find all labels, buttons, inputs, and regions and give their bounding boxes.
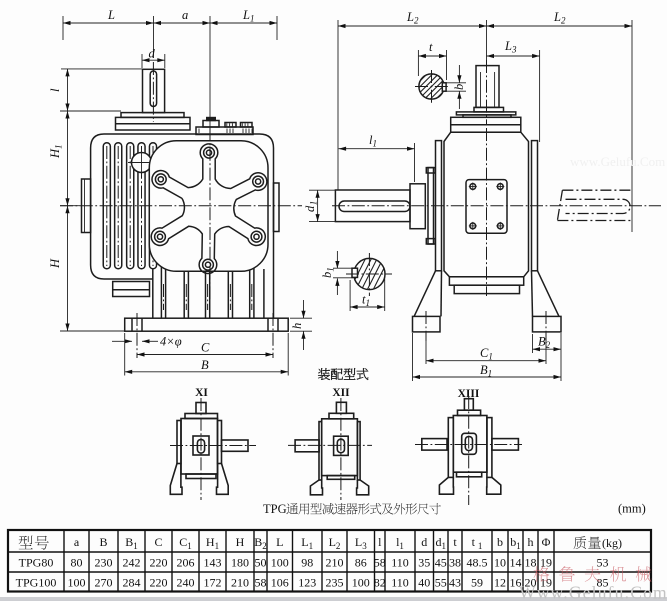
svg-text:L3: L3	[504, 39, 517, 55]
svg-text:10: 10	[494, 556, 506, 570]
svg-text:235: 235	[326, 576, 344, 590]
svg-text:B2: B2	[538, 335, 551, 351]
svg-text:B: B	[201, 358, 209, 372]
svg-text:l1: l1	[396, 535, 404, 551]
svg-text:H: H	[48, 258, 62, 269]
svg-text:B2: B2	[254, 535, 267, 551]
svg-text:L2: L2	[329, 535, 341, 551]
svg-text:l1: l1	[369, 133, 377, 149]
svg-text:98: 98	[301, 556, 313, 570]
svg-text:58: 58	[255, 576, 267, 590]
svg-text:58: 58	[374, 556, 386, 570]
svg-text:Www.Gelufu.Com: Www.Gelufu.Com	[519, 583, 667, 601]
svg-text:b: b	[497, 535, 503, 549]
svg-text:82: 82	[374, 576, 386, 590]
svg-text:Φ: Φ	[542, 535, 551, 549]
svg-text:H: H	[236, 535, 245, 549]
svg-text:d: d	[421, 535, 427, 549]
svg-text:240: 240	[177, 576, 195, 590]
svg-text:H1: H1	[48, 144, 64, 159]
svg-text:14: 14	[510, 556, 522, 570]
svg-text:B1: B1	[480, 363, 492, 379]
svg-text:d1: d1	[436, 535, 447, 551]
svg-text:B: B	[99, 535, 107, 549]
svg-text:l: l	[378, 535, 382, 549]
svg-text:110: 110	[391, 576, 409, 590]
svg-text:19: 19	[540, 556, 552, 570]
svg-text:43: 43	[449, 576, 461, 590]
svg-text:4×φ: 4×φ	[160, 335, 182, 349]
svg-text:a: a	[182, 8, 188, 22]
svg-text:B1: B1	[125, 535, 138, 551]
svg-text:220: 220	[150, 576, 168, 590]
svg-text:210: 210	[326, 556, 344, 570]
svg-text:TPG100: TPG100	[16, 576, 57, 590]
svg-text:t: t	[453, 535, 457, 549]
svg-text:h: h	[528, 535, 534, 549]
svg-text:100: 100	[271, 556, 289, 570]
svg-text:C: C	[201, 341, 210, 355]
svg-text:100: 100	[68, 576, 86, 590]
svg-text:b1: b1	[320, 267, 336, 278]
svg-text:C1: C1	[480, 346, 493, 362]
svg-text:www.Gelufu.Com: www.Gelufu.Com	[570, 154, 665, 169]
svg-text:XI: XI	[195, 387, 208, 399]
svg-text:270: 270	[95, 576, 113, 590]
svg-text:C1: C1	[179, 535, 192, 551]
svg-text:h: h	[290, 323, 304, 329]
svg-text:L: L	[107, 8, 115, 22]
svg-text:b: b	[452, 84, 466, 90]
svg-text:H1: H1	[206, 535, 219, 551]
svg-text:48.5: 48.5	[467, 556, 488, 570]
svg-text:100: 100	[352, 576, 370, 590]
svg-text:123: 123	[298, 576, 316, 590]
svg-text:TPG80: TPG80	[19, 556, 54, 570]
svg-text:C: C	[154, 535, 162, 549]
svg-text:d: d	[149, 47, 156, 61]
svg-text:86: 86	[355, 556, 367, 570]
svg-text:210: 210	[231, 576, 249, 590]
svg-text:45: 45	[435, 556, 447, 570]
svg-text:110: 110	[391, 556, 409, 570]
svg-text:55: 55	[435, 576, 447, 590]
svg-text:a: a	[74, 535, 80, 549]
svg-text:18: 18	[525, 556, 537, 570]
svg-text:b1: b1	[510, 535, 521, 551]
svg-text:(mm): (mm)	[618, 502, 646, 516]
svg-text:180: 180	[231, 556, 249, 570]
svg-text:80: 80	[71, 556, 83, 570]
svg-text:12: 12	[494, 576, 506, 590]
svg-text:284: 284	[123, 576, 141, 590]
svg-text:d1: d1	[303, 201, 319, 212]
svg-text:230: 230	[95, 556, 113, 570]
svg-text:53: 53	[597, 556, 609, 570]
svg-text:50: 50	[255, 556, 267, 570]
svg-text:106: 106	[271, 576, 289, 590]
svg-text:59: 59	[471, 576, 483, 590]
svg-text:t 1: t 1	[472, 535, 483, 551]
svg-text:40: 40	[418, 576, 430, 590]
svg-text:L2: L2	[406, 10, 419, 26]
svg-text:t1: t1	[362, 293, 370, 309]
svg-text:L1: L1	[242, 8, 254, 24]
svg-text:L2: L2	[553, 10, 566, 26]
svg-text:242: 242	[123, 556, 141, 570]
svg-text:L3: L3	[355, 535, 367, 551]
svg-text:TPG: TPG	[263, 502, 287, 516]
svg-text:l: l	[48, 88, 62, 92]
svg-text:143: 143	[204, 556, 222, 570]
svg-text:t: t	[429, 40, 433, 54]
svg-text:L1: L1	[301, 535, 313, 551]
svg-text:XII: XII	[332, 387, 350, 399]
svg-text:35: 35	[418, 556, 430, 570]
svg-text:172: 172	[204, 576, 222, 590]
svg-text:(kg): (kg)	[602, 536, 622, 550]
svg-text:220: 220	[150, 556, 168, 570]
svg-text:L: L	[276, 535, 283, 549]
svg-text:206: 206	[177, 556, 195, 570]
svg-text:38: 38	[449, 556, 461, 570]
